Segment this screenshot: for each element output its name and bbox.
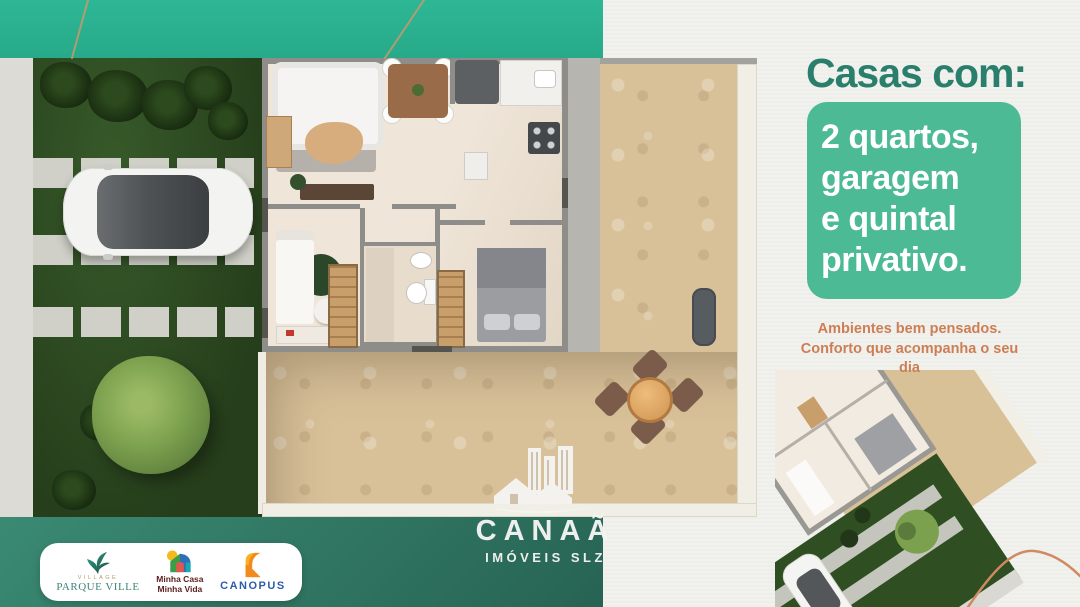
wall-segment: [510, 220, 562, 225]
teal-top-band: [0, 0, 603, 58]
car-mirror: [103, 254, 113, 260]
fridge: [455, 60, 499, 104]
feature-card: 2 quartos, garagem e quintal privativo.: [807, 102, 1021, 299]
parque-ville-logo: VILLAGE PARQUE VILLE: [56, 551, 139, 594]
mcmv-house-icon: [165, 549, 195, 574]
wall-segment: [440, 220, 485, 225]
parque-ville-label: PARQUE VILLE: [56, 582, 139, 593]
decor-item: [286, 330, 294, 336]
canaa-logo-subtitle: IMÓVEIS SLZ: [458, 550, 633, 565]
isometric-house-render: [775, 370, 1080, 607]
sidewalk: [0, 58, 33, 517]
canaa-logo-title: CANAÃ: [458, 515, 633, 548]
tree: [92, 356, 210, 474]
wall-segment: [268, 204, 360, 209]
house-plan: [262, 58, 568, 352]
tagline: Ambientes bem pensados. Conforto que aco…: [792, 320, 1027, 379]
shower: [366, 248, 394, 342]
wardrobe: [437, 270, 465, 348]
hummingbird-icon: [85, 551, 111, 575]
canaa-buildings-icon: [486, 446, 606, 514]
tv-console: [300, 184, 374, 200]
table-plant: [412, 84, 424, 96]
wardrobe: [328, 264, 358, 348]
patio-chair: [593, 380, 631, 418]
palm-shrub: [40, 62, 92, 108]
yard-wall: [737, 64, 757, 514]
paver-row: [33, 307, 254, 337]
side-path: [568, 58, 600, 352]
floor-plan-render: [0, 58, 757, 517]
wall-segment: [360, 208, 365, 244]
side-console: [266, 116, 292, 168]
patio-table: [627, 377, 673, 423]
palm-shrub: [52, 470, 96, 510]
cabinet: [464, 152, 488, 180]
car-top-view: [63, 168, 253, 256]
pillow: [514, 314, 540, 330]
headline: Casas com:: [806, 50, 1046, 97]
canopus-logo: CANOPUS: [220, 552, 286, 592]
palm-shrub: [88, 70, 148, 122]
window: [262, 308, 268, 338]
canopus-label: CANOPUS: [220, 581, 286, 592]
wall-segment: [435, 208, 440, 244]
mcmv-label: Minha Casa Minha Vida: [156, 575, 203, 595]
patio-table-set: [598, 354, 702, 446]
footer-logos-card: VILLAGE PARQUE VILLE Minha Casa Minha Vi…: [40, 543, 302, 601]
pillow: [484, 314, 510, 330]
palm-shrub: [208, 102, 248, 140]
yard-wall: [258, 352, 266, 514]
plant: [290, 174, 306, 190]
ad-canvas: CANAÃ IMÓVEIS SLZ Casas com: 2 quartos, …: [0, 0, 1080, 607]
window: [262, 198, 268, 232]
car-mirror: [103, 164, 113, 170]
toilet: [406, 282, 427, 304]
car-windshield: [97, 175, 209, 249]
bed-blanket: [477, 248, 546, 288]
canaa-logo: CANAÃ IMÓVEIS SLZ: [458, 446, 633, 565]
yard-gate: [692, 288, 716, 346]
wall-segment: [392, 204, 456, 209]
kitchen-sink: [534, 70, 556, 88]
canopus-icon: [242, 552, 264, 578]
bath-sink: [410, 252, 432, 269]
feature-card-text: 2 quartos, garagem e quintal privativo.: [821, 118, 978, 279]
minha-casa-minha-vida-logo: Minha Casa Minha Vida: [156, 549, 203, 595]
bed-single: [276, 230, 314, 324]
stove: [528, 122, 560, 154]
